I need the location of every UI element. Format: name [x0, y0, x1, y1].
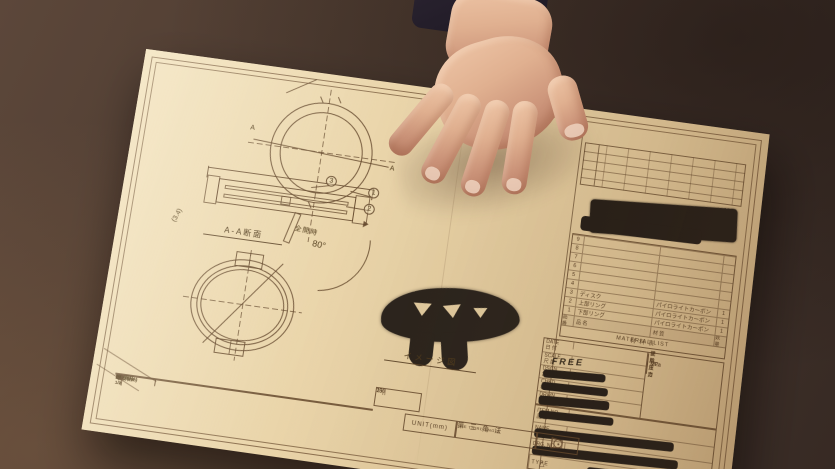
fingernail	[505, 177, 522, 192]
photo-scene: A A 1 2 3 A-A断面 (3.4) 全開時 80°	[0, 0, 835, 469]
hand	[400, 0, 630, 220]
spec-table: 使用圧力 MPa 使用温度 ℃ 試験圧力 MPa	[640, 352, 724, 430]
sketch-cutout	[443, 304, 462, 318]
sketch-cutout	[413, 302, 432, 316]
projection-cone-icon	[550, 437, 563, 448]
section-letter-right: A	[389, 165, 395, 172]
hinge-divider	[228, 341, 231, 354]
thumb	[544, 72, 591, 144]
sketch-cutout	[473, 308, 487, 318]
fingernail	[563, 122, 586, 140]
section-letter-left: A	[250, 125, 256, 132]
fingernail	[423, 164, 442, 183]
revision-mark-cell: △	[528, 455, 556, 469]
rev-triangle-icon: △	[539, 459, 545, 468]
spec-value	[646, 354, 666, 376]
mini-table-cell: 13	[376, 388, 382, 395]
fingernail	[463, 178, 481, 195]
